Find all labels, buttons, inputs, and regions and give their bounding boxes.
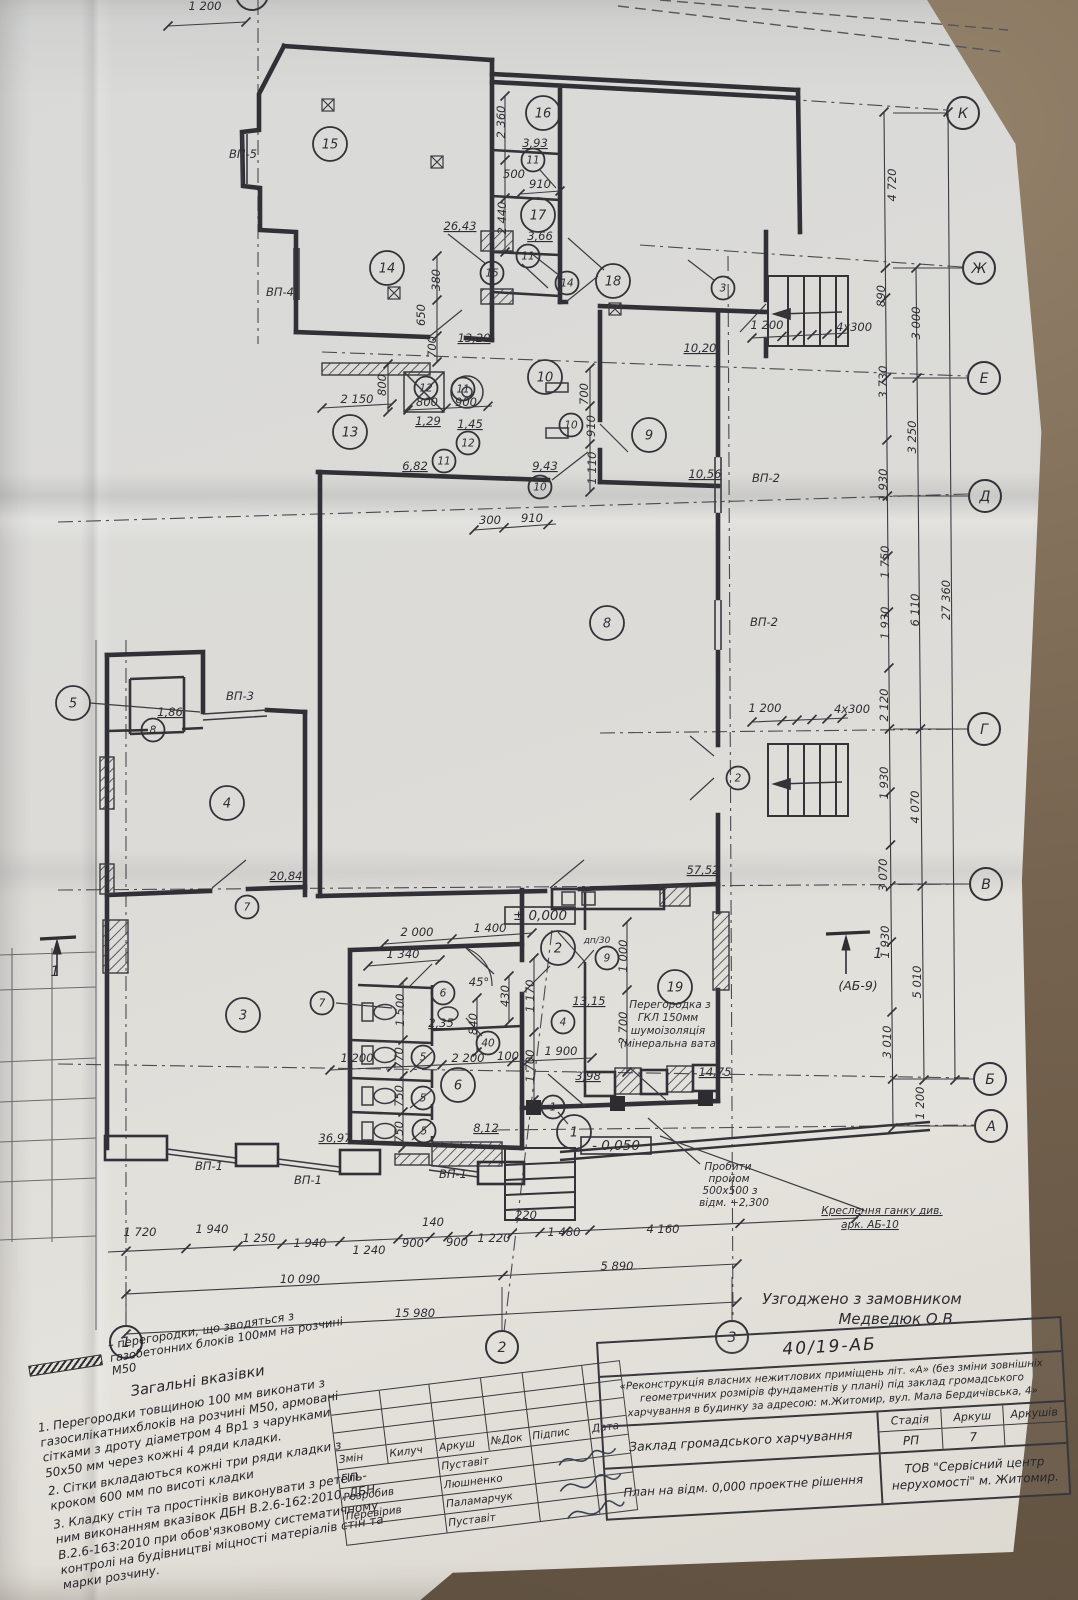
dim-label: арк. АБ-10 — [841, 1219, 899, 1231]
dim-label: Узгоджено з замовником — [762, 1290, 961, 1308]
room-number: 11 — [526, 155, 539, 167]
dim-label: дп/30 — [583, 936, 611, 946]
dim-label: 1 170 — [523, 980, 537, 1013]
dim-label: Креслення ганку див. — [821, 1205, 942, 1217]
dim-label: 1 940 — [294, 1236, 327, 1250]
dim-label: 220 — [515, 1208, 537, 1222]
axis-label: Ж — [970, 261, 987, 277]
title-block: 40/19-АБ «Реконструкція власних нежитлов… — [596, 1316, 1071, 1520]
dim-label: 3 070 — [876, 859, 890, 892]
dim-label: 3 250 — [905, 421, 919, 454]
room-number: 17 — [530, 209, 547, 224]
room-number: 10 — [537, 371, 554, 386]
dim-label: 1 200 — [749, 701, 782, 715]
dim-label: 5 890 — [601, 1259, 634, 1273]
organization: ТОВ "Сервісний центр нерухомості" м. Жит… — [881, 1444, 1069, 1503]
dim-label: 9,43 — [532, 459, 558, 473]
dim-label: 900 — [402, 1236, 424, 1250]
dim-label: 380 — [429, 269, 443, 291]
dim-label: 1 250 — [243, 1231, 276, 1245]
dim-label: 57,52 — [687, 863, 720, 877]
dim-label: ВП-5 — [229, 147, 257, 161]
axis-label: Б — [985, 1072, 995, 1088]
room-number: 15 — [485, 268, 499, 280]
dim-label: ВП-1 — [195, 1159, 223, 1173]
dim-label: 900 — [455, 395, 477, 409]
room-number: 2 — [554, 942, 562, 957]
room-number: 9 — [604, 953, 611, 965]
room-number: 3 — [720, 283, 727, 295]
dim-label: 13,15 — [573, 994, 606, 1008]
dim-label: 1 220 — [478, 1231, 511, 1245]
dim-label: 1 930 — [876, 469, 890, 502]
room-number: 16 — [535, 107, 552, 122]
dim-label: 430 — [498, 985, 512, 1007]
dimension-labels: 1 2002 3603,935009102 4403,6626,43380650… — [51, 0, 962, 1328]
dim-label: 3 000 — [909, 307, 923, 340]
dim-label: 10,20 — [684, 341, 717, 355]
room-number: 5 — [69, 697, 77, 712]
dim-label: 1 900 — [545, 1044, 578, 1058]
dim-label: 3 730 — [876, 366, 890, 399]
dim-label: 8,12 — [473, 1121, 499, 1135]
room-number: 14 — [379, 262, 396, 277]
room-number: 7 — [244, 902, 251, 914]
dim-label: 4x300 — [834, 702, 870, 716]
dim-label: 2 200 — [452, 1051, 485, 1065]
axis-label: 2 — [498, 1340, 507, 1356]
dim-label: 1,29 — [415, 414, 441, 428]
dim-label: 3 010 — [880, 1026, 894, 1059]
dim-label: 890 — [874, 285, 888, 307]
photo-background: 1 2002 3603,935009102 4403,6626,43380650… — [0, 0, 1078, 1600]
room-number: 11 — [456, 384, 469, 396]
dim-label: ВП-2 — [750, 615, 778, 629]
room-number: 4 — [223, 797, 231, 812]
room-number: 13 — [342, 426, 359, 441]
dim-label: 1 750 — [878, 546, 892, 579]
room-number: 6 — [440, 988, 447, 1000]
dim-label: ВП-1 — [439, 1167, 467, 1181]
folded-sheet-grid — [0, 640, 96, 1330]
dim-label: 1 — [51, 964, 60, 980]
dim-label: 2 000 — [401, 925, 434, 939]
dim-label: 900 — [446, 1235, 468, 1249]
room-number: 4 — [560, 1017, 567, 1029]
axis-lines — [58, 0, 975, 1332]
room-number: 1 — [550, 1102, 557, 1114]
dim-label: 1,86 — [157, 705, 183, 719]
roof-dashed-lines — [618, 0, 1008, 52]
dim-label: 1 200 — [913, 1087, 927, 1120]
walls-exterior — [107, 46, 800, 1148]
axis-label: В — [981, 877, 991, 893]
dim-label: 770 — [392, 1047, 406, 1069]
dim-label: 1 720 — [124, 1225, 157, 1239]
dim-label: ± 0,000 — [513, 908, 567, 924]
room-number: 8 — [603, 617, 611, 632]
dim-label: 14,75 — [699, 1065, 732, 1079]
dim-label: 1 110 — [585, 452, 599, 485]
room-number: 2 — [735, 773, 742, 785]
dim-label: 700 — [425, 336, 439, 358]
dim-label: 4 720 — [885, 169, 899, 202]
sheet-value: 7 — [941, 1426, 1004, 1449]
stage-value: РП — [879, 1429, 942, 1452]
dim-label: 27 360 — [939, 580, 953, 620]
room-number: 12 — [461, 438, 475, 450]
dim-label: 26,43 — [444, 219, 477, 233]
room-number: 11 — [437, 456, 450, 468]
dim-label: 2 440 — [495, 202, 509, 235]
axis-label: К — [958, 106, 969, 122]
room-number: 11 — [521, 251, 534, 263]
dim-label: (АБ-9) — [838, 978, 877, 993]
dim-label: 910 — [521, 511, 543, 525]
dim-label: 1 — [874, 946, 883, 962]
dim-label: 650 — [414, 304, 428, 326]
dim-label: ВП-2 — [752, 471, 780, 485]
room-number: 10 — [564, 420, 578, 432]
axis-label: Г — [980, 722, 989, 738]
room-number: 9 — [645, 429, 653, 444]
room-number: 7 — [319, 998, 326, 1010]
dim-label: 1 930 — [878, 607, 892, 640]
dim-label: 140 — [422, 1215, 444, 1229]
dim-label: 3,98 — [575, 1069, 601, 1083]
dim-label: 700 — [577, 383, 591, 405]
room-number: 5 — [421, 1126, 428, 1138]
room-number: 12 — [419, 383, 433, 395]
dim-label: 5 010 — [910, 966, 924, 999]
dim-label: 1 200 — [189, 0, 222, 13]
dim-label: 4x300 — [836, 320, 872, 334]
dim-label: 750 — [392, 1085, 406, 1107]
dim-label: 300 — [479, 513, 501, 527]
room-number: 14 — [560, 278, 573, 290]
room-number: 3 — [239, 1009, 247, 1024]
room-number: 15 — [322, 138, 339, 153]
room-number: 1 — [570, 1126, 578, 1141]
room-number: 40 — [481, 1038, 495, 1050]
dim-label: 13,20 — [458, 331, 491, 345]
dim-label: 1 940 — [196, 1222, 229, 1236]
dim-label: 840 — [466, 1013, 480, 1035]
dim-label: 36,97 — [319, 1131, 353, 1145]
room-number: 5 — [420, 1052, 427, 1064]
dim-label: 1 340 — [387, 947, 420, 961]
axis-label: Д — [979, 489, 991, 505]
room-number: 5 — [420, 1093, 427, 1105]
dim-label: - 0,050 — [592, 1138, 640, 1154]
dim-label: 6 110 — [908, 594, 922, 627]
room-number: 8 — [150, 725, 157, 737]
crossed-square-markers — [322, 99, 621, 315]
stair-arrows — [774, 309, 842, 789]
dim-label: 2 120 — [877, 689, 891, 722]
dim-label: 1 480 — [548, 1225, 581, 1239]
dim-label: 910 — [584, 415, 598, 437]
dim-label: ВП-3 — [226, 689, 254, 703]
dim-label: 1 400 — [474, 921, 507, 935]
dim-label: 500х500 з — [702, 1185, 758, 1197]
dim-label: Перегородка з — [629, 999, 711, 1011]
partition-legend-symbol — [28, 1355, 103, 1377]
dim-label: 910 — [529, 177, 551, 191]
dim-label: 2,35 — [428, 1016, 454, 1030]
dim-label: 1 200 — [341, 1051, 374, 1065]
dim-label: 1,45 — [457, 417, 483, 431]
room-number: 18 — [605, 275, 622, 290]
dim-label: 10,56 — [689, 467, 722, 481]
dim-label: 20,84 — [270, 869, 303, 883]
axis-label: Е — [980, 371, 989, 387]
dim-label: 2 360 — [494, 106, 508, 139]
dim-label: відм. +2,300 — [699, 1197, 769, 1209]
dim-label: 4 070 — [908, 791, 922, 824]
dim-label: 1 200 — [751, 318, 784, 332]
dim-label: 1 240 — [353, 1243, 386, 1257]
dim-label: 45° — [469, 975, 489, 989]
dim-label: Пробити — [704, 1161, 751, 1173]
dim-label: 10 090 — [280, 1272, 320, 1286]
dim-label: 750 — [392, 1121, 406, 1143]
dim-label: пройом — [708, 1173, 749, 1185]
dim-label: 100 — [497, 1049, 519, 1063]
dim-label: шумоізоляція — [631, 1025, 706, 1037]
dim-label: ВП-4 — [266, 285, 294, 299]
dim-label: 1 500 — [393, 994, 407, 1027]
dim-label: 4 160 — [647, 1222, 680, 1236]
room-number: 10 — [533, 482, 547, 494]
dim-label: 1 700 — [523, 1050, 537, 1083]
dim-label: 2 150 — [341, 392, 374, 406]
dim-label: 500 — [503, 167, 525, 181]
axis-circle — [236, 0, 268, 10]
room-number: 19 — [667, 981, 684, 996]
dim-label: 15 980 — [395, 1306, 435, 1320]
sheets-value — [1003, 1422, 1066, 1445]
dim-label: 1 930 — [877, 767, 891, 800]
dim-label: 6,82 — [402, 459, 428, 473]
dim-label: 800 — [375, 374, 389, 396]
dim-label: ВП-1 — [294, 1173, 322, 1187]
dim-label: (мінеральна вата) — [620, 1038, 720, 1050]
axis-label: А — [985, 1119, 996, 1135]
dim-label: ГКЛ 150мм — [638, 1012, 699, 1024]
room-number: 6 — [454, 1079, 462, 1094]
